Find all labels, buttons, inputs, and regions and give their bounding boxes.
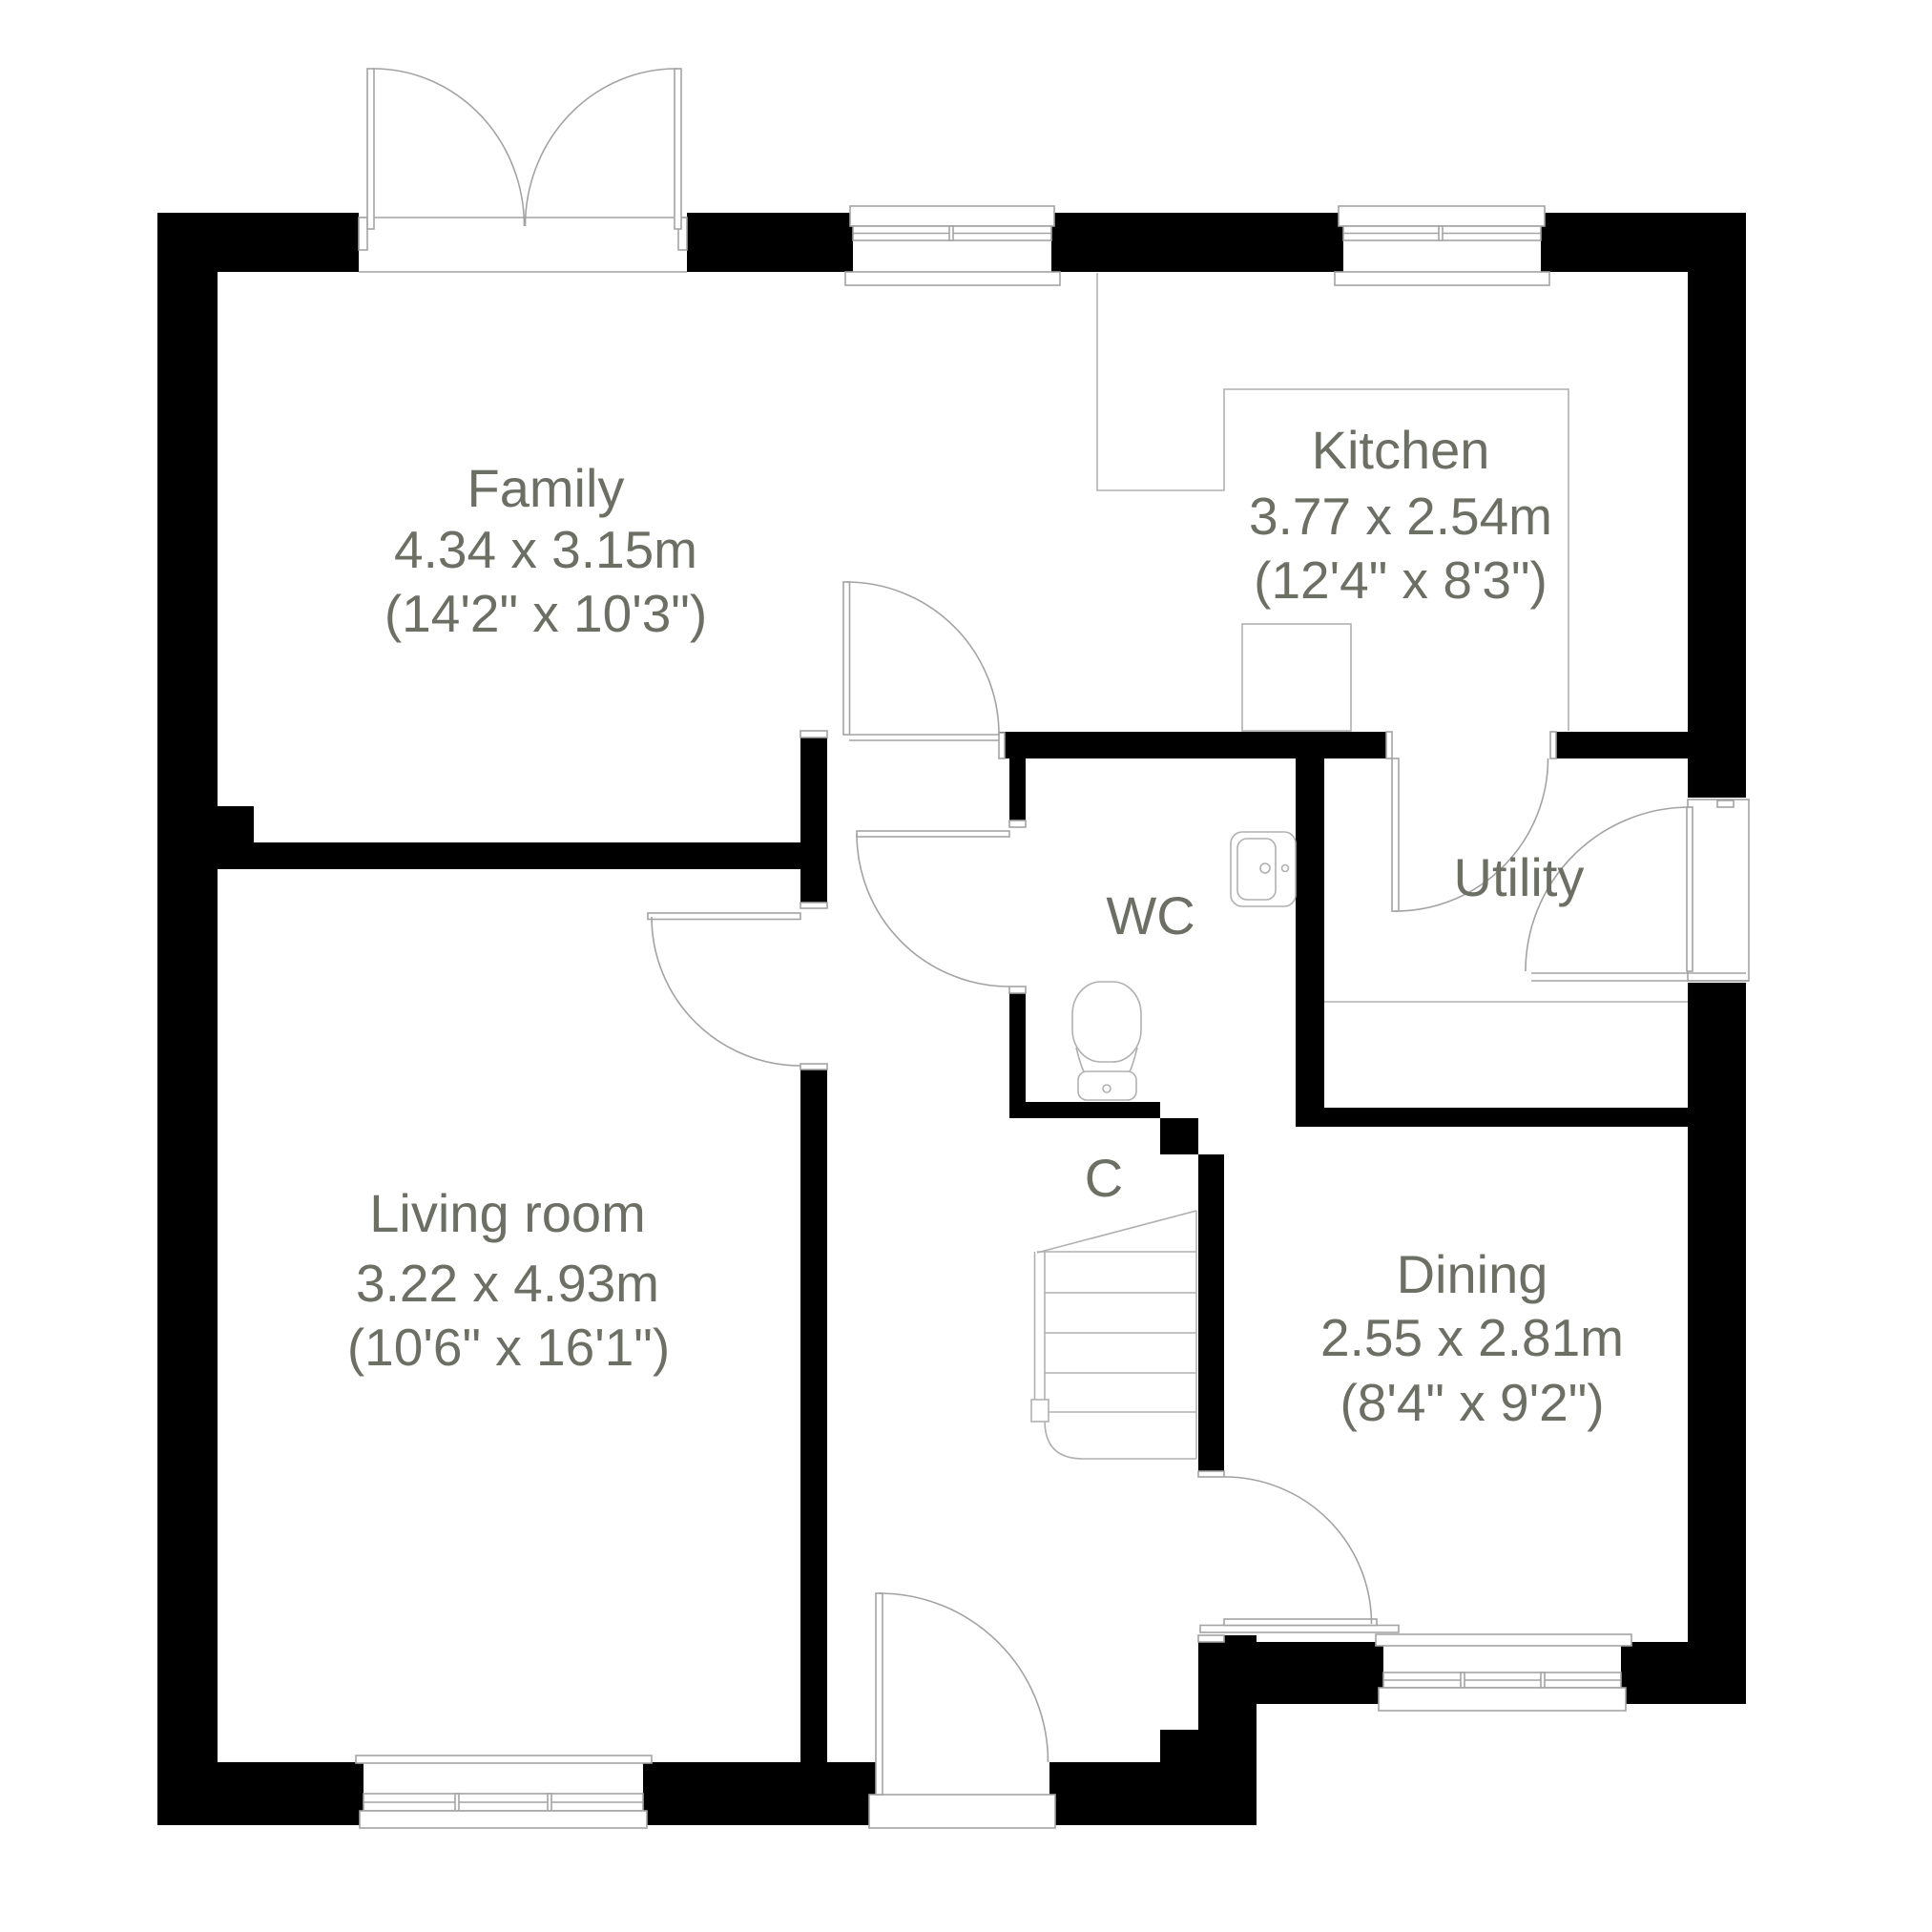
svg-text:Utility: Utility [1454, 847, 1585, 907]
svg-text:(10'6" x 16'1"): (10'6" x 16'1") [347, 1318, 670, 1377]
svg-text:3.22 x 4.93m: 3.22 x 4.93m [356, 1254, 659, 1313]
svg-text:4.34 x 3.15m: 4.34 x 3.15m [394, 520, 697, 579]
svg-text:3.77 x 2.54m: 3.77 x 2.54m [1249, 487, 1552, 546]
svg-text:(8'4" x 9'2"): (8'4" x 9'2") [1340, 1373, 1604, 1432]
svg-text:Kitchen: Kitchen [1312, 420, 1490, 480]
svg-text:(14'2" x 10'3"): (14'2" x 10'3") [384, 584, 707, 643]
svg-text:Living room: Living room [369, 1183, 645, 1243]
svg-text:2.55 x 2.81m: 2.55 x 2.81m [1320, 1308, 1624, 1367]
svg-text:(12'4" x 8'3"): (12'4" x 8'3") [1254, 551, 1548, 610]
svg-text:WC: WC [1106, 885, 1195, 945]
svg-text:C: C [1085, 1148, 1123, 1208]
svg-text:Family: Family [467, 458, 625, 518]
svg-text:Dining: Dining [1397, 1244, 1548, 1304]
